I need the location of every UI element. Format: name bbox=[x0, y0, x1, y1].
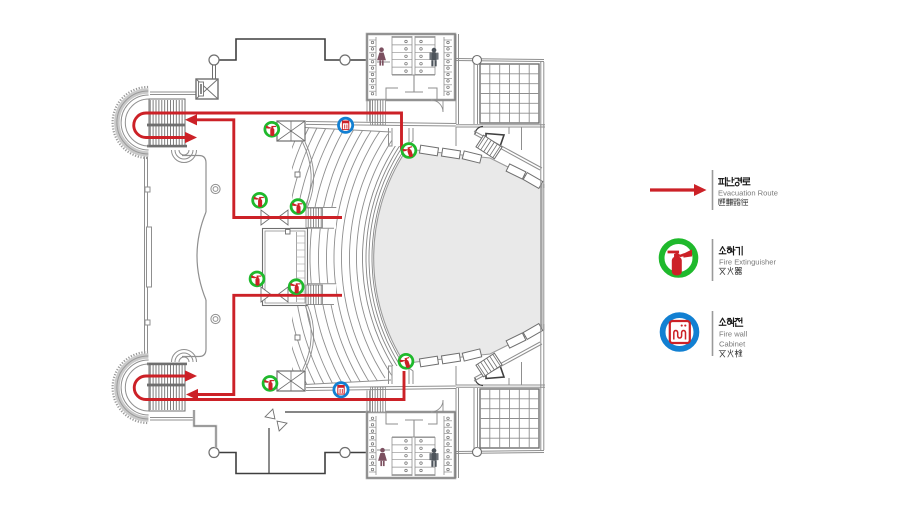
svg-text:Evacuation Route: Evacuation Route bbox=[718, 189, 778, 198]
svg-text:Fire Extinguisher: Fire Extinguisher bbox=[719, 258, 776, 267]
svg-text:Cabinet: Cabinet bbox=[719, 340, 746, 349]
svg-text:Fire wall: Fire wall bbox=[719, 330, 748, 339]
